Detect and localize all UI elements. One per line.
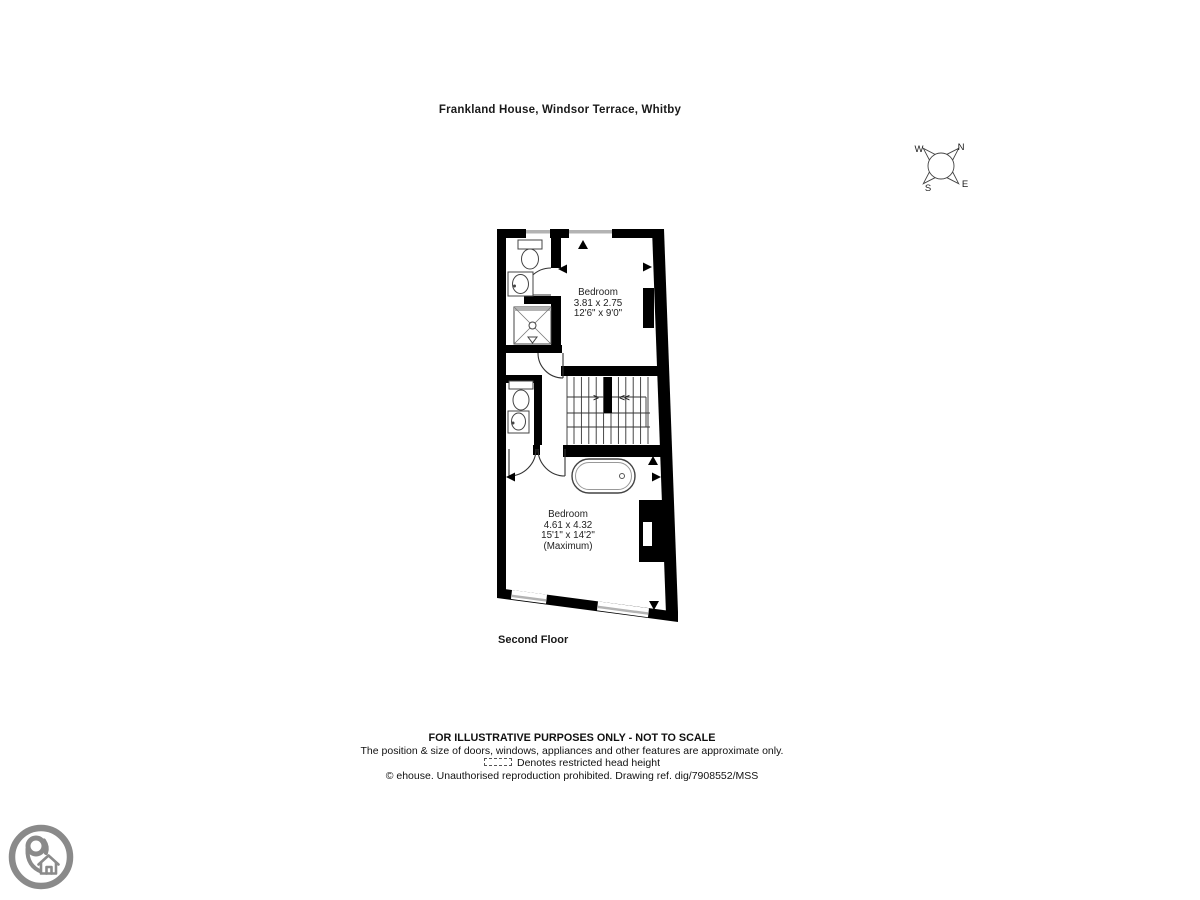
compass-label-w: W <box>915 144 924 155</box>
logo-ring <box>12 828 70 886</box>
bathroom-fixtures <box>508 240 551 344</box>
wc-toilet <box>509 381 533 410</box>
compass-label-n: N <box>958 142 965 153</box>
compass-rose: N E S W <box>915 142 969 194</box>
bedroom2-note: (Maximum) <box>518 542 618 553</box>
door-bedroom1 <box>538 353 563 378</box>
stair-direction-up: > <box>593 393 599 404</box>
arrow-b2-right <box>652 473 661 482</box>
disclaimer-line2: The position & size of doors, windows, a… <box>272 745 872 758</box>
shower <box>514 307 551 344</box>
bedroom1-imperial-size: 12'6" x 9'0" <box>548 309 648 320</box>
toilet <box>518 240 542 269</box>
chimney-alcove <box>643 522 652 546</box>
door-wc <box>509 449 536 476</box>
disclaimer-block: FOR ILLUSTRATIVE PURPOSES ONLY - NOT TO … <box>272 732 872 782</box>
agency-logo <box>12 828 70 886</box>
logo-pin-head <box>28 838 44 854</box>
bedroom2-label: Bedroom 4.61 x 4.32 15'1" x 14'2" (Maxim… <box>518 510 618 553</box>
arrow-b2-left <box>506 473 515 482</box>
bathtub <box>572 459 635 493</box>
disclaimer-line1: FOR ILLUSTRATIVE PURPOSES ONLY - NOT TO … <box>272 732 872 745</box>
staircase: > << <box>567 376 650 445</box>
arrow-b1-up <box>578 240 588 249</box>
window-bottom-right <box>597 601 649 617</box>
wc-washbasin <box>508 411 529 433</box>
stair-divider-wall <box>604 377 612 413</box>
stair-direction-down: << <box>619 393 630 404</box>
arrow-b2-up <box>648 456 658 465</box>
window-top-bedroom1 <box>569 229 612 238</box>
disclaimer-line3: Denotes restricted head height <box>272 757 872 770</box>
door-landing <box>538 449 565 476</box>
compass-label-e: E <box>962 179 968 190</box>
copyright-line: © ehouse. Unauthorised reproduction proh… <box>272 770 872 783</box>
floor-name-label: Second Floor <box>498 634 568 646</box>
washbasin <box>508 272 533 296</box>
window-top-bathroom <box>526 229 550 238</box>
arrow-b1-right <box>643 263 652 272</box>
floorplan-page: Frankland House, Windsor Terrace, Whitby <box>0 0 1200 900</box>
restricted-head-height-symbol <box>484 758 512 766</box>
bedroom1-label: Bedroom 3.81 x 2.75 12'6" x 9'0" <box>548 288 648 320</box>
wc-fixtures <box>508 381 533 433</box>
compass-label-s: S <box>925 183 931 194</box>
restricted-head-height-text: Denotes restricted head height <box>517 757 660 769</box>
